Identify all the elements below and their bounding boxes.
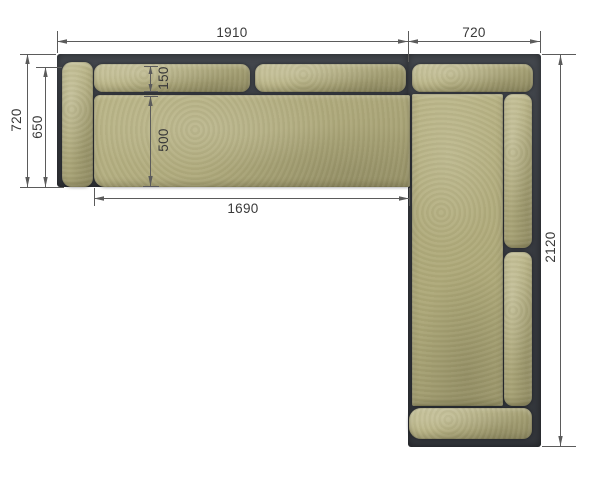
left-armrest-cushion <box>62 62 93 187</box>
dimension-label-right-section-width: 720 <box>434 26 514 40</box>
dimension-label-left-depth: 720 <box>10 90 24 150</box>
right-armrest-cushion-lower <box>504 252 532 406</box>
bottom-end-cushion <box>409 408 532 439</box>
sofa-dimension-drawing: 1910 720 720 650 150 500 1690 2120 <box>0 0 600 500</box>
dimension-label-total-width: 1910 <box>192 26 272 40</box>
dimension-label-seat-depth: 500 <box>157 110 171 170</box>
dimension-label-left-inner-depth: 650 <box>31 97 45 157</box>
seat-cushion-horizontal <box>94 95 410 187</box>
dimension-label-total-length: 2120 <box>544 212 558 282</box>
back-cushion-corner <box>412 64 533 92</box>
dimension-label-seat-length: 1690 <box>203 202 283 216</box>
back-cushion-middle <box>255 64 406 92</box>
seat-cushion-vertical <box>412 94 503 406</box>
right-armrest-cushion-upper <box>504 94 532 248</box>
dimension-label-backrest-depth: 150 <box>157 48 171 108</box>
back-cushion-left <box>94 64 250 92</box>
